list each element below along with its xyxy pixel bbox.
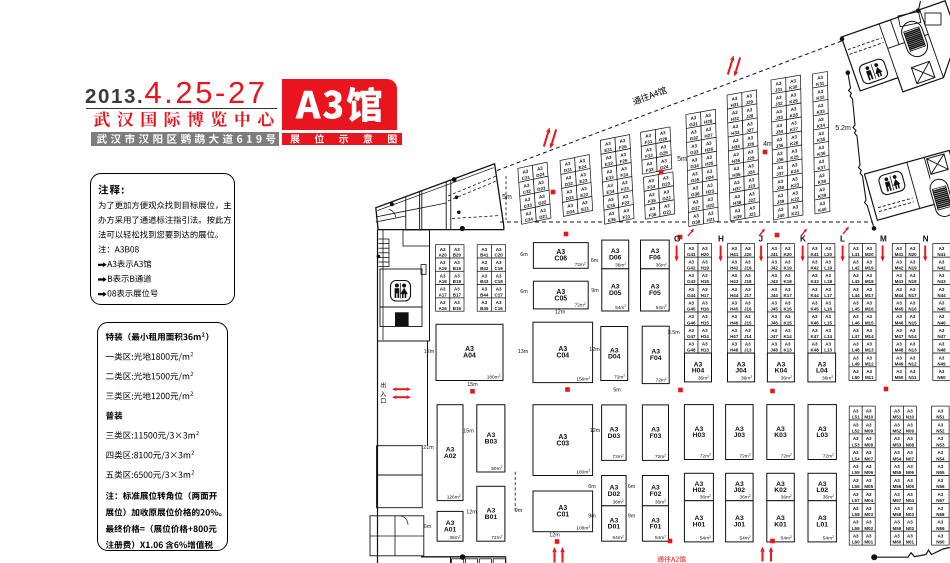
svg-text:N54: N54 (936, 456, 945, 461)
svg-text:M47: M47 (895, 334, 904, 339)
svg-text:N47: N47 (937, 334, 946, 339)
svg-text:J16: J16 (744, 307, 752, 312)
svg-text:M53: M53 (893, 442, 902, 447)
svg-text:N52: N52 (936, 429, 945, 434)
svg-text:A3: A3 (866, 287, 872, 292)
svg-text:H43: H43 (730, 279, 739, 284)
svg-text:M16: M16 (865, 307, 874, 312)
svg-text:A3: A3 (938, 408, 944, 413)
svg-text:K17: K17 (783, 293, 792, 298)
svg-text:M07: M07 (864, 456, 873, 461)
svg-text:A3: A3 (896, 355, 902, 360)
svg-text:M20: M20 (865, 252, 874, 257)
svg-text:A3: A3 (866, 436, 872, 441)
svg-text:K04: K04 (775, 368, 788, 375)
svg-text:L55: L55 (852, 470, 860, 475)
svg-text:A3: A3 (825, 328, 831, 333)
svg-text:A3: A3 (894, 492, 900, 497)
svg-text:A3: A3 (894, 464, 900, 469)
svg-text:N59: N59 (936, 526, 945, 531)
svg-text:F05: F05 (649, 290, 661, 297)
svg-text:N50: N50 (937, 375, 946, 380)
svg-text:N: N (923, 235, 929, 244)
svg-text:J15: J15 (744, 320, 752, 325)
svg-text:B03: B03 (485, 439, 498, 446)
svg-text:156m2: 156m2 (576, 376, 590, 383)
svg-text:M17: M17 (865, 293, 874, 298)
svg-text:A3: A3 (454, 273, 460, 278)
svg-text:A3: A3 (688, 314, 694, 319)
svg-text:N57: N57 (936, 498, 945, 503)
svg-text:G44: G44 (687, 293, 696, 298)
svg-text:A3: A3 (745, 273, 751, 278)
svg-text:J20: J20 (744, 252, 752, 257)
svg-text:A3: A3 (791, 106, 797, 112)
svg-text:J41: J41 (770, 252, 778, 257)
svg-text:A3: A3 (910, 355, 916, 360)
svg-text:G46: G46 (687, 320, 696, 325)
svg-text:M11: M11 (865, 375, 874, 380)
svg-text:A3: A3 (853, 342, 859, 347)
svg-text:A3: A3 (777, 151, 783, 157)
svg-text:K15: K15 (783, 320, 792, 325)
svg-text:5m: 5m (502, 194, 512, 201)
svg-text:A3: A3 (853, 328, 859, 333)
svg-text:A3: A3 (896, 259, 902, 264)
svg-text:K45: K45 (810, 307, 819, 312)
svg-text:A3: A3 (910, 287, 916, 292)
svg-text:B45: B45 (480, 306, 489, 311)
svg-text:M: M (880, 235, 887, 244)
svg-text:N49: N49 (937, 361, 946, 366)
svg-text:A3: A3 (910, 273, 916, 278)
svg-text:A3: A3 (440, 273, 446, 278)
svg-text:A3: A3 (785, 287, 791, 292)
svg-text:M05: M05 (864, 484, 873, 489)
svg-text:M54: M54 (893, 456, 902, 461)
svg-text:K16: K16 (783, 307, 792, 312)
svg-text:A3: A3 (745, 301, 751, 306)
svg-text:B19: B19 (453, 266, 462, 271)
svg-text:M03: M03 (864, 512, 873, 517)
svg-text:N19: N19 (908, 266, 917, 271)
svg-text:6m: 6m (628, 484, 636, 490)
svg-text:A3: A3 (778, 207, 784, 213)
svg-text:A3: A3 (702, 246, 708, 251)
svg-text:D05: D05 (609, 290, 622, 297)
svg-text:J44: J44 (770, 293, 778, 298)
svg-text:A3: A3 (776, 123, 782, 129)
svg-text:M15: M15 (865, 320, 874, 325)
svg-text:J46: J46 (770, 320, 778, 325)
svg-text:N51: N51 (936, 415, 945, 420)
svg-text:C20: C20 (494, 253, 503, 258)
svg-text:L: L (840, 235, 845, 244)
svg-text:A3: A3 (440, 300, 446, 305)
svg-text:A01: A01 (444, 527, 457, 534)
svg-text:13m: 13m (518, 349, 529, 355)
svg-text:126m2: 126m2 (447, 494, 461, 501)
svg-text:A3: A3 (745, 259, 751, 264)
svg-text:A3: A3 (812, 342, 818, 347)
svg-text:C03: C03 (556, 440, 569, 447)
svg-text:A3: A3 (907, 506, 913, 511)
svg-text:A3: A3 (853, 506, 859, 511)
svg-text:M44: M44 (895, 293, 904, 298)
svg-text:A3: A3 (866, 478, 872, 483)
svg-text:A3: A3 (907, 492, 913, 497)
svg-text:A3: A3 (853, 408, 859, 413)
svg-text:L17: L17 (824, 293, 832, 298)
svg-text:A3: A3 (866, 408, 872, 413)
svg-text:N41: N41 (937, 252, 946, 257)
svg-text:A3: A3 (825, 259, 831, 264)
svg-text:C19: C19 (494, 266, 503, 271)
svg-text:H45: H45 (730, 307, 739, 312)
svg-text:A3: A3 (853, 259, 859, 264)
svg-text:A3: A3 (910, 328, 916, 333)
svg-text:A3: A3 (812, 301, 818, 306)
svg-text:A3: A3 (481, 300, 487, 305)
svg-text:K48: K48 (810, 348, 819, 353)
svg-text:B41: B41 (480, 253, 489, 258)
svg-text:A3: A3 (866, 506, 872, 511)
svg-text:A3: A3 (496, 247, 502, 252)
svg-text:M02: M02 (864, 526, 873, 531)
svg-text:M51: M51 (893, 415, 902, 420)
svg-text:A3: A3 (825, 287, 831, 292)
svg-text:A3: A3 (702, 273, 708, 278)
svg-text:F04: F04 (650, 355, 662, 362)
svg-text:A3: A3 (454, 300, 460, 305)
svg-text:N56: N56 (936, 484, 945, 489)
svg-text:M50: M50 (895, 375, 904, 380)
svg-text:N43: N43 (937, 279, 946, 284)
svg-text:A3: A3 (907, 450, 913, 455)
svg-text:G48: G48 (687, 348, 696, 353)
svg-text:K03: K03 (774, 432, 787, 439)
svg-text:A3: A3 (896, 342, 902, 347)
svg-text:A3: A3 (440, 287, 446, 292)
svg-text:L53: L53 (852, 442, 860, 447)
svg-text:A3: A3 (853, 246, 859, 251)
svg-text:K46: K46 (810, 320, 819, 325)
svg-text:A3: A3 (939, 369, 945, 374)
svg-text:G42: G42 (687, 266, 696, 271)
svg-text:K19: K19 (783, 266, 792, 271)
svg-text:A3: A3 (818, 131, 824, 137)
svg-text:A3: A3 (853, 534, 859, 539)
svg-text:N01: N01 (906, 540, 915, 545)
svg-text:A3: A3 (939, 259, 945, 264)
svg-text:L44: L44 (852, 293, 860, 298)
svg-text:G41: G41 (687, 252, 696, 257)
svg-text:A3: A3 (907, 408, 913, 413)
svg-text:F01: F01 (650, 524, 662, 531)
svg-text:A3: A3 (938, 450, 944, 455)
svg-text:L51: L51 (852, 415, 860, 420)
svg-text:H19: H19 (701, 266, 710, 271)
svg-text:K47: K47 (810, 334, 819, 339)
svg-text:A3: A3 (731, 342, 737, 347)
svg-text:B42: B42 (480, 266, 489, 271)
svg-text:N45: N45 (937, 307, 946, 312)
svg-text:A3: A3 (792, 176, 798, 182)
svg-text:M04: M04 (864, 498, 873, 503)
svg-text:A3: A3 (818, 103, 824, 109)
svg-text:L04: L04 (816, 368, 828, 375)
svg-text:A3: A3 (938, 422, 944, 427)
svg-text:A3: A3 (776, 109, 782, 115)
svg-text:A3: A3 (481, 247, 487, 252)
svg-text:L18: L18 (824, 279, 832, 284)
svg-text:A3: A3 (454, 247, 460, 252)
svg-text:A3: A3 (866, 464, 872, 469)
svg-text:H47: H47 (730, 334, 739, 339)
svg-text:A3: A3 (853, 492, 859, 497)
svg-text:H14: H14 (701, 334, 710, 339)
svg-text:A19: A19 (438, 266, 447, 271)
svg-text:A3: A3 (866, 450, 872, 455)
svg-text:6m: 6m (520, 252, 528, 258)
svg-text:9m: 9m (588, 514, 596, 520)
svg-text:A3: A3 (745, 342, 751, 347)
svg-text:A3: A3 (812, 314, 818, 319)
svg-text:A3: A3 (812, 246, 818, 251)
svg-text:H16: H16 (701, 307, 710, 312)
svg-text:M42: M42 (895, 266, 904, 271)
svg-text:B18: B18 (453, 279, 462, 284)
svg-text:M48: M48 (895, 348, 904, 353)
svg-text:M59: M59 (893, 526, 902, 531)
svg-text:5m: 5m (613, 388, 621, 394)
svg-text:L56: L56 (852, 484, 860, 489)
svg-text:A3: A3 (853, 450, 859, 455)
svg-text:H17: H17 (701, 293, 710, 298)
svg-text:A3: A3 (792, 190, 798, 196)
svg-text:M58: M58 (893, 512, 902, 517)
svg-text:L60: L60 (852, 540, 860, 545)
svg-text:A3: A3 (785, 301, 791, 306)
svg-text:M12: M12 (865, 361, 874, 366)
svg-text:A3: A3 (481, 260, 487, 265)
svg-text:N18: N18 (908, 279, 917, 284)
svg-text:H20: H20 (701, 252, 710, 257)
svg-text:A3: A3 (817, 75, 823, 81)
svg-text:L50: L50 (852, 375, 860, 380)
svg-text:D02: D02 (608, 491, 621, 498)
svg-text:L54: L54 (852, 456, 860, 461)
svg-text:A3: A3 (910, 259, 916, 264)
svg-text:C06: C06 (554, 256, 567, 263)
svg-text:N06: N06 (906, 470, 915, 475)
svg-text:A3: A3 (896, 246, 902, 251)
svg-text:9m: 9m (628, 514, 636, 520)
svg-text:H03: H03 (693, 432, 706, 439)
svg-text:A3: A3 (778, 193, 784, 199)
svg-text:A3: A3 (812, 328, 818, 333)
svg-text:A3: A3 (939, 314, 945, 319)
svg-text:A3: A3 (688, 342, 694, 347)
svg-text:A3: A3 (702, 328, 708, 333)
svg-text:A3: A3 (866, 342, 872, 347)
svg-text:A3: A3 (791, 120, 797, 126)
svg-text:H: H (718, 235, 724, 244)
svg-text:A3: A3 (776, 95, 782, 101)
svg-text:H48: H48 (730, 348, 739, 353)
svg-text:N09: N09 (906, 429, 915, 434)
svg-text:A3: A3 (496, 300, 502, 305)
svg-text:A3: A3 (825, 301, 831, 306)
svg-text:M01: M01 (864, 540, 873, 545)
svg-text:M10: M10 (864, 415, 873, 420)
svg-text:12m: 12m (589, 347, 600, 353)
svg-text:A18: A18 (438, 279, 447, 284)
svg-text:J03: J03 (734, 432, 746, 439)
svg-text:A3: A3 (853, 355, 859, 360)
svg-text:N48: N48 (937, 348, 946, 353)
svg-text:A3: A3 (702, 342, 708, 347)
svg-text:A3: A3 (938, 492, 944, 497)
svg-text:F02: F02 (650, 491, 662, 498)
svg-text:G43: G43 (687, 279, 696, 284)
svg-text:M45: M45 (895, 307, 904, 312)
svg-text:A3: A3 (777, 179, 783, 185)
svg-text:L46: L46 (852, 320, 860, 325)
svg-text:A3: A3 (938, 506, 944, 511)
svg-text:A3: A3 (938, 520, 944, 525)
svg-text:A3: A3 (496, 273, 502, 278)
svg-text:A3: A3 (496, 260, 502, 265)
svg-text:N16: N16 (908, 307, 917, 312)
svg-text:A3: A3 (866, 534, 872, 539)
svg-text:N58: N58 (936, 512, 945, 517)
svg-text:A3: A3 (790, 78, 796, 84)
svg-text:N13: N13 (908, 348, 917, 353)
svg-text:A3: A3 (771, 259, 777, 264)
svg-text:A3: A3 (791, 148, 797, 154)
svg-text:N46: N46 (937, 320, 946, 325)
svg-text:M06: M06 (864, 470, 873, 475)
svg-text:A3: A3 (454, 260, 460, 265)
svg-text:C18: C18 (494, 279, 503, 284)
svg-text:A3: A3 (825, 314, 831, 319)
svg-text:A3: A3 (866, 259, 872, 264)
svg-text:180m2: 180m2 (487, 374, 501, 381)
svg-text:A3: A3 (907, 436, 913, 441)
svg-text:A3: A3 (825, 273, 831, 278)
svg-text:M14: M14 (865, 334, 874, 339)
svg-text:A3: A3 (853, 520, 859, 525)
svg-text:A3: A3 (771, 314, 777, 319)
svg-text:H15: H15 (701, 320, 710, 325)
svg-text:6m: 6m (520, 289, 528, 295)
svg-text:B20: B20 (453, 253, 462, 258)
svg-text:M09: M09 (864, 429, 873, 434)
svg-text:J04: J04 (735, 368, 747, 375)
svg-text:K42: K42 (810, 266, 819, 271)
svg-text:N60: N60 (936, 540, 945, 545)
svg-text:A3: A3 (938, 478, 944, 483)
svg-text:A3: A3 (688, 328, 694, 333)
svg-text:H01: H01 (693, 522, 706, 529)
svg-text:M13: M13 (865, 348, 874, 353)
svg-text:12m: 12m (466, 510, 477, 516)
svg-text:A20: A20 (438, 253, 447, 258)
svg-text:F03: F03 (650, 433, 662, 440)
svg-text:A3: A3 (771, 328, 777, 333)
svg-text:A3: A3 (812, 273, 818, 278)
svg-text:A3: A3 (939, 328, 945, 333)
svg-text:N10: N10 (906, 415, 915, 420)
svg-text:A3: A3 (866, 520, 872, 525)
svg-text:H04: H04 (692, 368, 705, 375)
svg-text:N08: N08 (906, 442, 915, 447)
svg-text:K14: K14 (783, 334, 792, 339)
svg-text:B16: B16 (453, 306, 462, 311)
svg-text:L58: L58 (852, 512, 860, 517)
svg-text:A3: A3 (853, 273, 859, 278)
svg-text:K01: K01 (774, 522, 787, 529)
svg-text:A3: A3 (440, 247, 446, 252)
svg-text:A3: A3 (702, 259, 708, 264)
svg-text:K20: K20 (783, 252, 792, 257)
svg-text:J19: J19 (744, 266, 752, 271)
svg-text:L45: L45 (852, 307, 860, 312)
svg-text:N44: N44 (937, 293, 946, 298)
svg-text:L03: L03 (816, 432, 828, 439)
svg-text:A3: A3 (785, 342, 791, 347)
svg-text:A3: A3 (866, 246, 872, 251)
svg-text:A3: A3 (745, 328, 751, 333)
svg-text:A3: A3 (792, 204, 798, 210)
svg-text:A3: A3 (907, 422, 913, 427)
svg-text:6m: 6m (591, 258, 599, 264)
svg-text:A3: A3 (866, 422, 872, 427)
svg-text:A3: A3 (818, 117, 824, 123)
svg-text:A3: A3 (819, 187, 825, 193)
svg-text:108m2: 108m2 (576, 525, 590, 532)
svg-text:A3: A3 (907, 464, 913, 469)
svg-text:A3: A3 (910, 342, 916, 347)
svg-text:H46: H46 (730, 320, 739, 325)
svg-text:A3: A3 (702, 301, 708, 306)
svg-text:A3: A3 (688, 301, 694, 306)
svg-text:L59: L59 (852, 526, 860, 531)
svg-text:D04: D04 (608, 354, 621, 361)
svg-text:15m: 15m (463, 429, 474, 435)
svg-text:A3: A3 (894, 408, 900, 413)
svg-text:A3: A3 (894, 506, 900, 511)
svg-text:A3: A3 (731, 301, 737, 306)
svg-text:A3: A3 (790, 92, 796, 98)
svg-text:M43: M43 (895, 279, 904, 284)
svg-text:H13: H13 (701, 348, 710, 353)
svg-text:A3: A3 (792, 162, 798, 168)
svg-text:A3: A3 (812, 259, 818, 264)
svg-text:A3: A3 (894, 534, 900, 539)
svg-text:N20: N20 (908, 252, 917, 257)
svg-text:M08: M08 (864, 442, 873, 447)
svg-text:A3: A3 (688, 287, 694, 292)
svg-text:J01: J01 (734, 522, 746, 529)
svg-text:5.2m: 5.2m (835, 125, 851, 132)
svg-text:15m: 15m (467, 382, 478, 388)
svg-text:J48: J48 (770, 348, 778, 353)
svg-text:A3: A3 (771, 342, 777, 347)
svg-text:A02: A02 (444, 453, 457, 460)
svg-text:J42: J42 (770, 266, 778, 271)
